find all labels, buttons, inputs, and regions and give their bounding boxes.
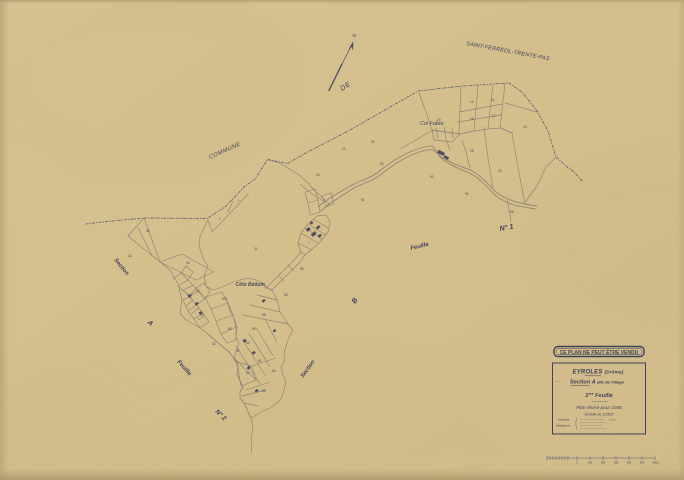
svg-text:19: 19 — [498, 169, 502, 173]
svg-text:CE PLAN NE PEUT ÊTRE VENDU: CE PLAN NE PEUT ÊTRE VENDU — [560, 348, 639, 356]
svg-text:25: 25 — [371, 140, 375, 144]
svg-text:200: 200 — [601, 461, 606, 465]
svg-text:N: N — [353, 33, 356, 38]
svg-text:400: 400 — [627, 461, 632, 465]
svg-text:vérifications: vérifications — [556, 424, 570, 428]
svg-text:60: 60 — [246, 341, 250, 345]
svg-text:52: 52 — [212, 342, 216, 346]
svg-text:47: 47 — [196, 289, 200, 293]
svg-text:16: 16 — [470, 117, 474, 121]
svg-text:500: 500 — [640, 461, 645, 465]
svg-text:56: 56 — [284, 293, 288, 297]
svg-text:31: 31 — [254, 247, 258, 251]
svg-text:92: 92 — [380, 162, 384, 166]
svg-text:58: 58 — [262, 313, 266, 317]
svg-text:+: + — [219, 217, 221, 221]
svg-text:64: 64 — [262, 389, 266, 393]
svg-text:33: 33 — [186, 261, 190, 265]
svg-text:Échelle de 1/2500: Échelle de 1/2500 — [585, 412, 614, 417]
svg-text:50: 50 — [222, 297, 226, 301]
svg-text:91: 91 — [361, 198, 365, 202]
svg-text:95: 95 — [510, 210, 514, 214]
svg-text:63: 63 — [272, 369, 276, 373]
svg-text:53: 53 — [228, 327, 232, 331]
svg-text:32: 32 — [128, 254, 132, 258]
svg-text:100: 100 — [588, 461, 593, 465]
svg-text:94: 94 — [465, 192, 469, 196]
svg-text:30: 30 — [146, 229, 150, 233]
svg-text:Côte Béduin: Côte Béduin — [236, 282, 265, 288]
svg-text:61: 61 — [246, 371, 250, 375]
svg-text:Plan révisé pour 1935: Plan révisé pour 1935 — [576, 405, 622, 410]
svg-text:+: + — [308, 241, 310, 245]
svg-text:57: 57 — [236, 349, 240, 353]
svg-text:49: 49 — [200, 313, 204, 317]
svg-text:59: 59 — [252, 327, 256, 331]
svg-text:23: 23 — [342, 147, 346, 151]
svg-text:x 2 m: x 2 m — [609, 418, 615, 422]
svg-text:15: 15 — [470, 100, 474, 104]
svg-text:Numéroté: Numéroté — [558, 418, 570, 422]
svg-text:24: 24 — [316, 173, 320, 177]
svg-text:+: + — [238, 199, 240, 203]
svg-text:13: 13 — [523, 125, 527, 129]
svg-text:600m: 600m — [653, 461, 660, 465]
svg-text:93: 93 — [430, 175, 434, 179]
svg-text:55: 55 — [300, 267, 304, 271]
svg-text:Col Fabre: Col Fabre — [420, 121, 444, 127]
svg-text:18: 18 — [470, 149, 474, 153]
svg-text:17: 17 — [492, 114, 496, 118]
svg-text:+: + — [314, 230, 316, 234]
svg-text:62: 62 — [258, 359, 262, 363]
svg-text:14: 14 — [491, 98, 495, 102]
svg-text:—: — — [555, 379, 559, 384]
svg-text:300: 300 — [614, 461, 619, 465]
